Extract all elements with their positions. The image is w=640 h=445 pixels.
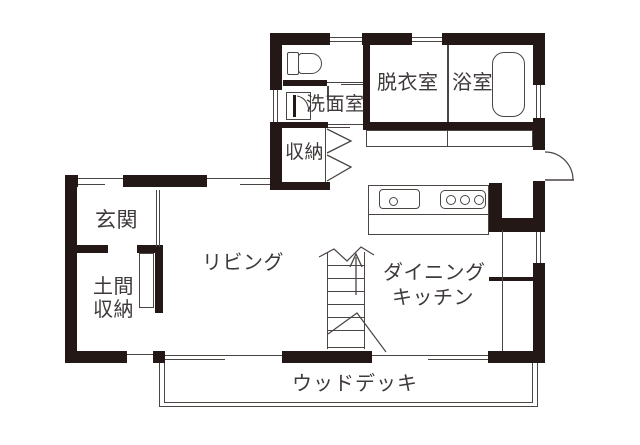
sliding-door-sash (327, 82, 363, 83)
stairs-tread (328, 291, 364, 292)
window-sash (536, 85, 537, 118)
sliding-door-sash (328, 124, 363, 125)
cabinet-divider (447, 130, 448, 147)
wood-deck-label: ウッドデッキ (292, 373, 418, 395)
doma-storage-label-line2: 収納 (93, 299, 134, 322)
window-sash (127, 354, 153, 355)
window-sash (78, 178, 123, 179)
wall-toilet-divider (283, 80, 327, 86)
kitchen-sink-icon (379, 189, 420, 209)
wall-entry-stub-left (77, 245, 108, 253)
window-sash (273, 90, 274, 122)
sliding-door-entry-living (156, 190, 160, 247)
storage-label: 収納 (285, 143, 324, 164)
window-sash (330, 37, 362, 38)
stairs-side (327, 252, 328, 349)
toilet-icon (298, 53, 322, 74)
cabinet-counter (366, 130, 533, 147)
dining-kitchen-label-line2: キッチン (383, 286, 483, 311)
stairs-bottom (328, 347, 364, 348)
window-sash (165, 359, 225, 360)
stairs-tread (328, 330, 364, 331)
bathtub-icon (492, 52, 525, 117)
window-sash (78, 184, 105, 185)
closet-front-line (325, 128, 326, 182)
window-sash (540, 232, 541, 263)
wall-storage-bottom (271, 182, 330, 190)
stove-burner (474, 195, 484, 205)
dining-kitchen-label: ダイニング キッチン (383, 261, 483, 311)
sliding-door-sash (341, 84, 363, 85)
deck-sliding-window (165, 351, 282, 363)
stairs-tread (328, 304, 364, 305)
entrance-label: 玄関 (95, 209, 138, 232)
bifold-door-icon (327, 129, 351, 153)
wall-entry-living (155, 247, 163, 313)
wall-kitchen-end-h (489, 218, 545, 232)
doma-storage-label-line1: 土間 (93, 276, 134, 299)
stove-burner (460, 195, 470, 205)
back-door-opening (533, 150, 545, 181)
wall-right (533, 33, 545, 363)
sliding-door-sash (328, 127, 350, 128)
window (270, 90, 282, 122)
dining-kitchen-label-line1: ダイニング (383, 261, 483, 286)
window-sash (240, 184, 270, 185)
window-sash (330, 41, 362, 42)
window (533, 85, 545, 118)
window-sash (536, 232, 537, 263)
window-sash (277, 90, 278, 122)
wall-main-left (65, 175, 77, 363)
entrance-sliding-door (78, 175, 123, 187)
window (533, 232, 545, 263)
window-sash (540, 85, 541, 118)
niche-line (502, 230, 503, 351)
floor-plan: 玄関 土間 収納 リビング 収納 洗面室 脱衣室 浴室 ダイニング キッチン ウ… (0, 0, 640, 445)
window (207, 175, 270, 187)
washroom-label: 洗面室 (306, 95, 365, 116)
wall-upper-top (270, 33, 545, 45)
window-sash (207, 178, 270, 179)
stairs-tread (328, 278, 364, 279)
window (330, 33, 362, 45)
deck-sliding-window (372, 351, 488, 363)
window-sash (165, 355, 282, 356)
hinged-door-leaf (293, 95, 296, 117)
window-sash (372, 355, 488, 356)
wall-bath-divider (447, 45, 449, 122)
wall-dining-stub (489, 277, 533, 281)
window (412, 33, 442, 45)
window-sash (412, 41, 442, 42)
window (127, 351, 153, 363)
doma-storage-label: 土間 収納 (93, 276, 134, 322)
stairs-side (364, 252, 365, 349)
bathroom-label: 浴室 (452, 72, 493, 94)
stairs-tread (328, 265, 364, 266)
stove-burner (446, 195, 456, 205)
kitchen-counter-edge (369, 214, 488, 215)
stairs-tread (328, 317, 364, 318)
dressing-room-label: 脱衣室 (377, 72, 439, 94)
sink-drain (389, 197, 398, 206)
wall-upper-bottom (363, 122, 545, 130)
window-sash (412, 37, 442, 38)
living-label: リビング (202, 252, 284, 274)
window-sash (428, 359, 488, 360)
bifold-door-icon (327, 155, 351, 181)
wall-storage-top (271, 122, 328, 128)
shoe-shelf (139, 253, 154, 308)
swing-door-arc (545, 152, 573, 180)
